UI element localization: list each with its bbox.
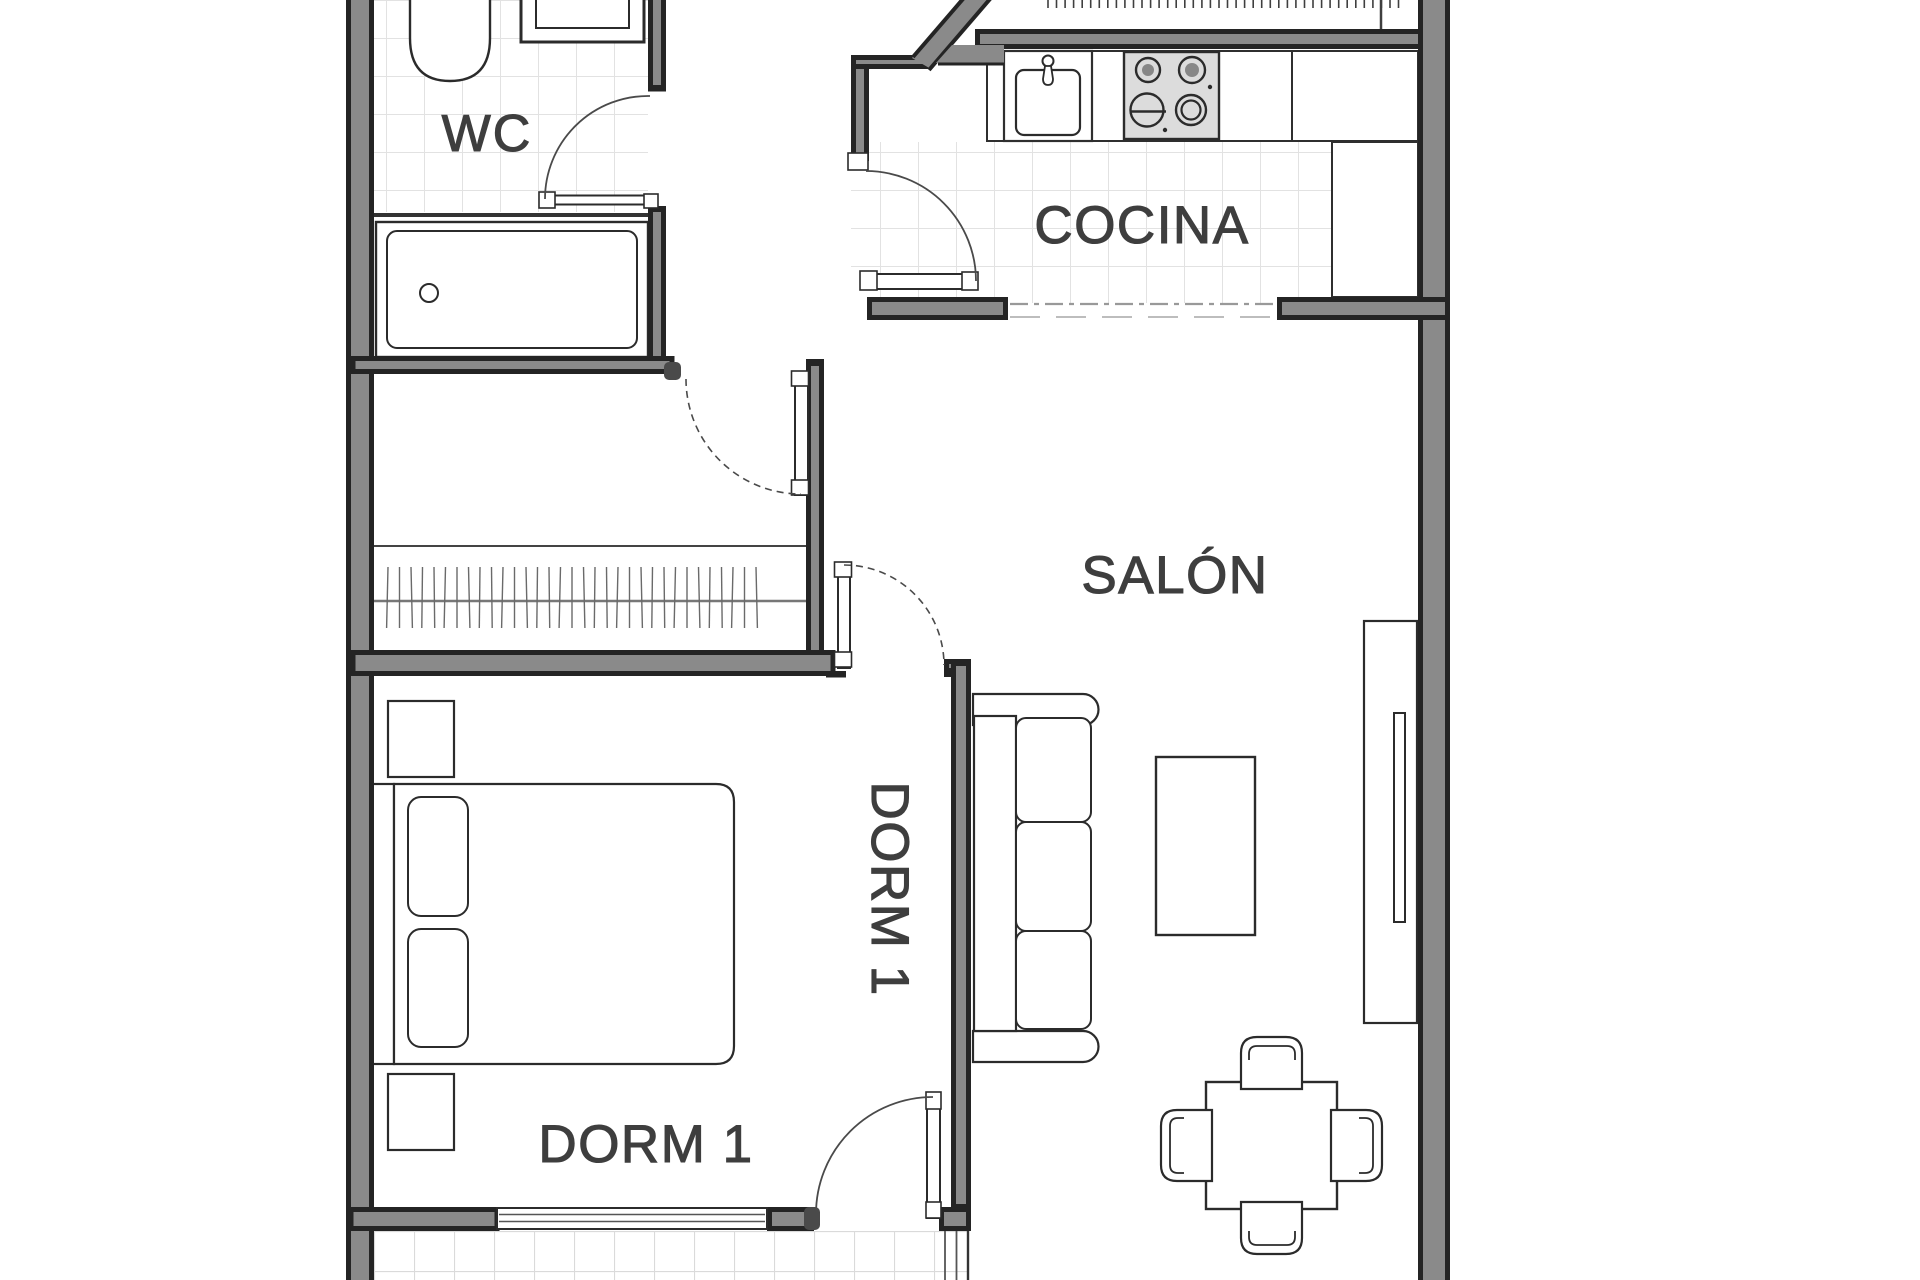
svg-text:SALÓN: SALÓN [1081,546,1268,605]
svg-text:WC: WC [442,105,533,163]
svg-text:COCINA: COCINA [1034,196,1249,255]
svg-text:DORM 1: DORM 1 [860,781,919,996]
svg-text:DORM 1: DORM 1 [538,1115,753,1174]
